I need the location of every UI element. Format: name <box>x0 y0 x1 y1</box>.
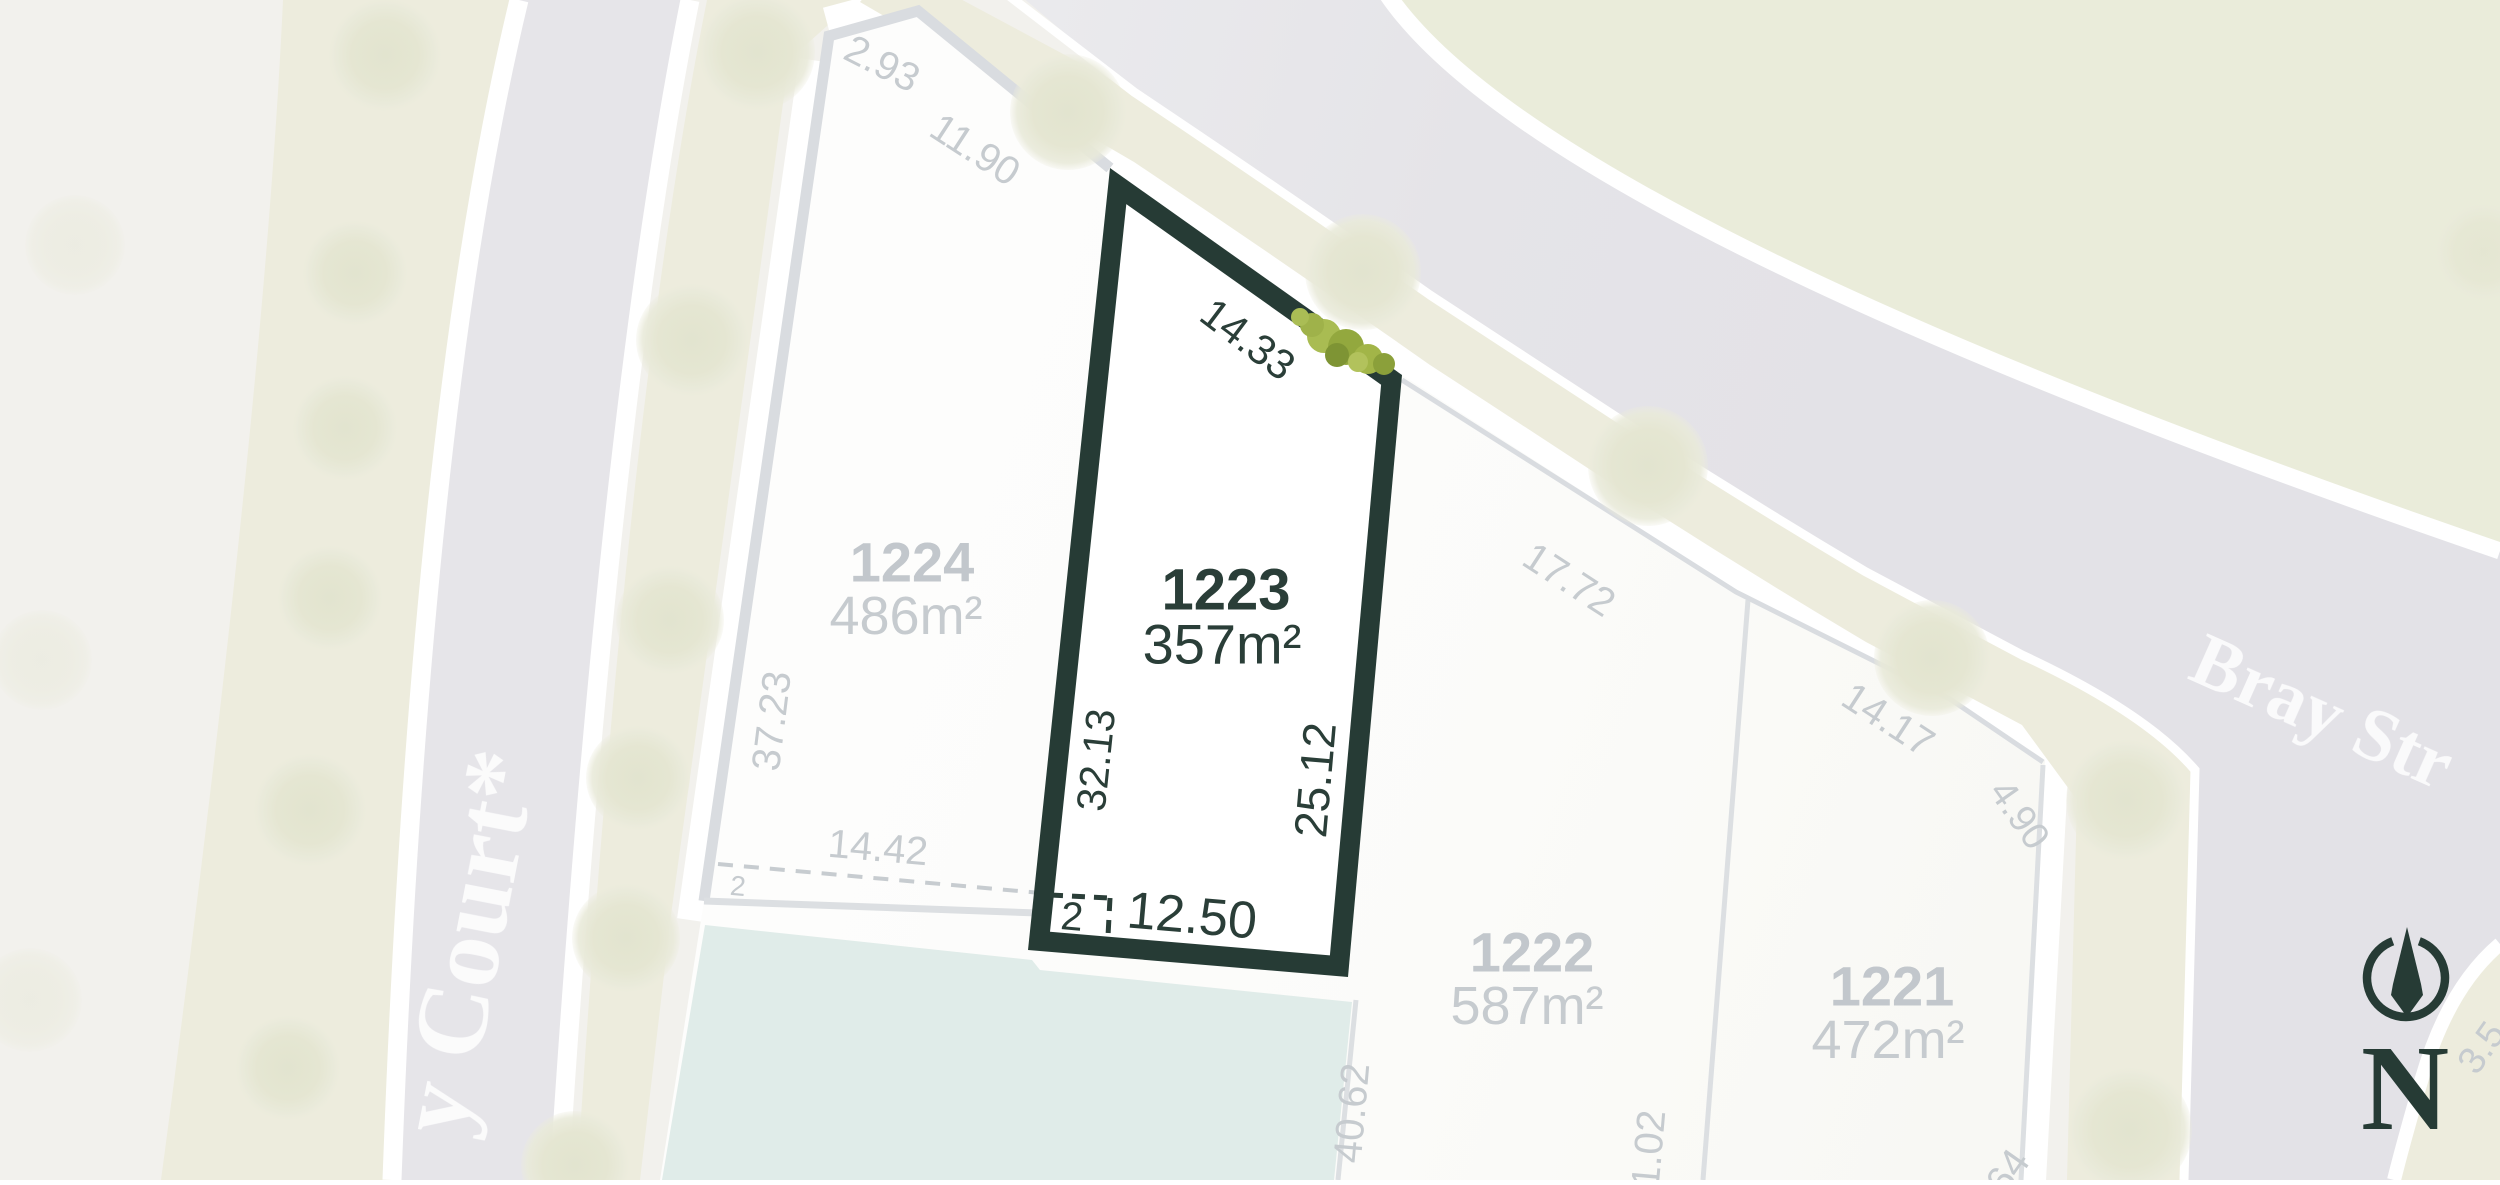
svg-text:1222: 1222 <box>1470 921 1595 984</box>
svg-text:41.02: 41.02 <box>1622 1108 1675 1180</box>
svg-text:2: 2 <box>1059 894 1085 940</box>
svg-text:587m²: 587m² <box>1450 976 1603 1036</box>
svg-text:12.50: 12.50 <box>1125 881 1260 950</box>
svg-text:1221: 1221 <box>1830 955 1955 1018</box>
svg-text:1224: 1224 <box>850 531 975 594</box>
svg-text:14.42: 14.42 <box>826 822 930 875</box>
svg-text:472m²: 472m² <box>1811 1010 1964 1070</box>
svg-text:25.12: 25.12 <box>1284 720 1346 839</box>
svg-text:40.62: 40.62 <box>1326 1061 1379 1165</box>
svg-text:357m²: 357m² <box>1143 613 1302 676</box>
svg-text:2: 2 <box>729 870 747 902</box>
svg-text:486m²: 486m² <box>829 586 982 646</box>
svg-text:N: N <box>2361 1021 2449 1156</box>
